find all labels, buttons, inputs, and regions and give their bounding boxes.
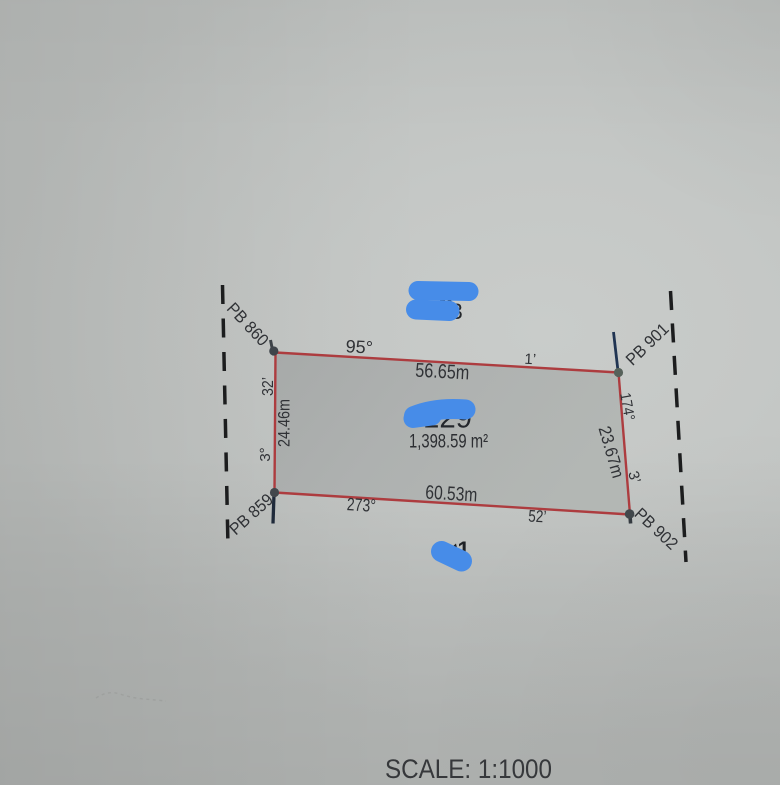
svg-text:24.46m: 24.46m bbox=[275, 399, 294, 447]
svg-text:273°: 273° bbox=[346, 494, 376, 516]
svg-text:52’: 52’ bbox=[528, 506, 547, 526]
svg-text:1’: 1’ bbox=[524, 351, 537, 369]
svg-text:32’: 32’ bbox=[260, 377, 277, 396]
svg-text:3°: 3° bbox=[257, 447, 274, 461]
svg-text:1,398.59 m²: 1,398.59 m² bbox=[409, 431, 488, 453]
svg-text:56.65m: 56.65m bbox=[415, 360, 470, 385]
svg-text:SCALE: 1:1000: SCALE: 1:1000 bbox=[385, 754, 552, 784]
svg-text:60.53m: 60.53m bbox=[425, 481, 478, 506]
svg-text:95°: 95° bbox=[345, 336, 373, 357]
